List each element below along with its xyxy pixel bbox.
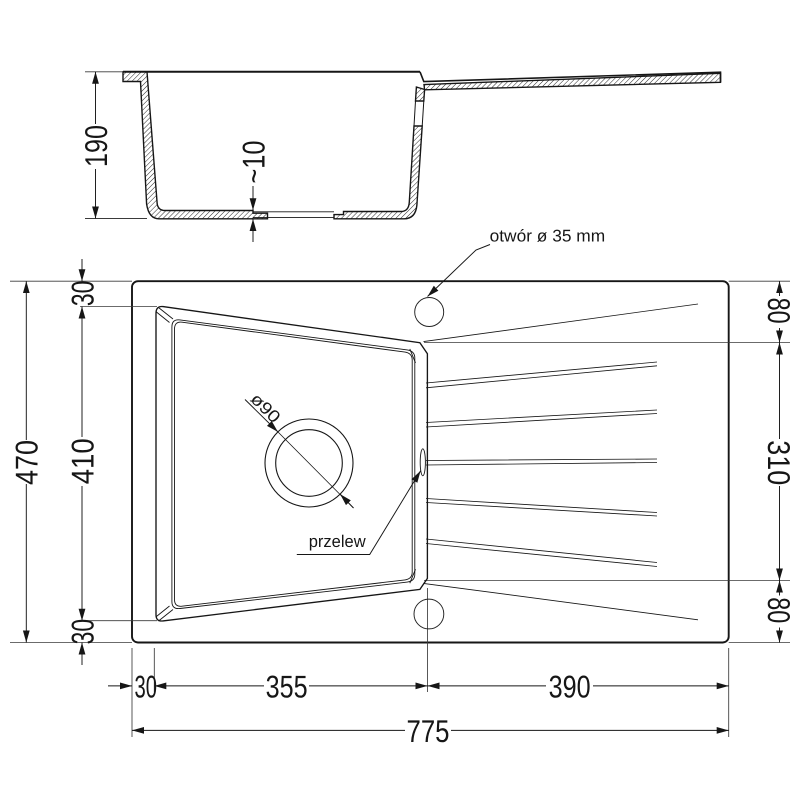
svg-text:390: 390 xyxy=(549,668,591,704)
svg-text:30: 30 xyxy=(64,619,100,645)
svg-text:355: 355 xyxy=(266,668,308,704)
svg-text:otwór ø 35 mm: otwór ø 35 mm xyxy=(490,227,606,246)
svg-text:~10: ~10 xyxy=(235,141,271,184)
svg-text:80: 80 xyxy=(761,597,797,623)
svg-text:30: 30 xyxy=(64,281,100,307)
svg-text:470: 470 xyxy=(9,440,45,485)
svg-text:30: 30 xyxy=(135,668,158,704)
svg-text:410: 410 xyxy=(64,438,100,484)
svg-text:310: 310 xyxy=(761,440,797,485)
svg-text:przelew: przelew xyxy=(309,532,367,551)
svg-text:190: 190 xyxy=(78,125,114,167)
svg-text:80: 80 xyxy=(761,298,797,324)
svg-text:775: 775 xyxy=(407,713,450,749)
